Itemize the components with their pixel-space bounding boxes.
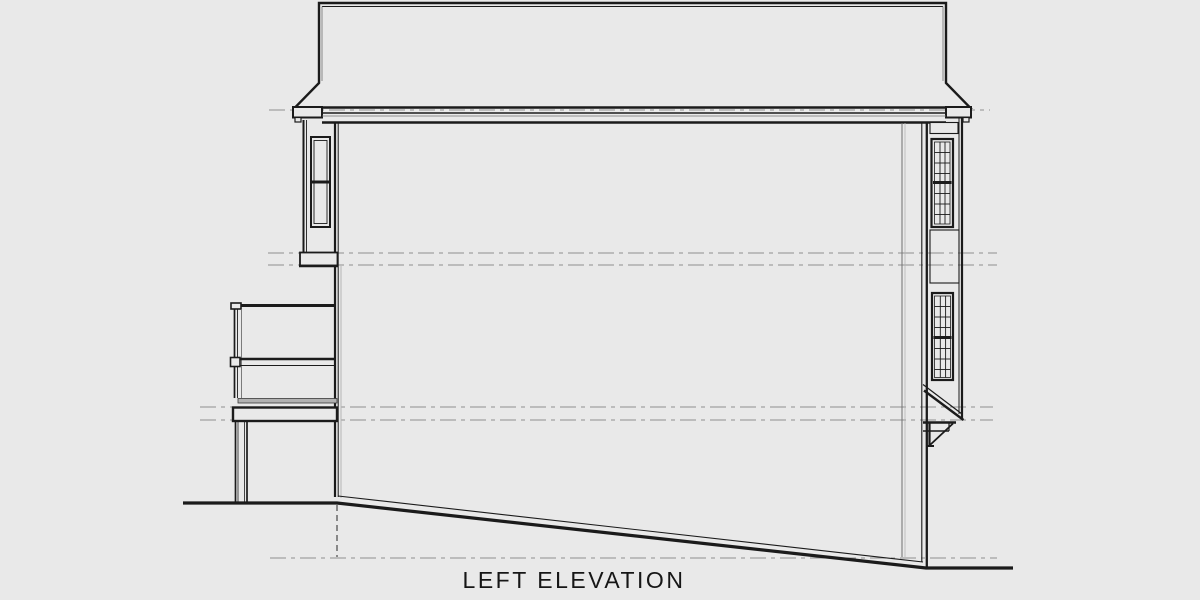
eave-right <box>946 107 971 118</box>
drawing-title: LEFT ELEVATION <box>414 567 734 594</box>
elevation-drawing <box>0 0 1200 600</box>
deck-top-rail-cap <box>231 303 241 309</box>
bay-underside-slope-top <box>923 385 962 415</box>
bay-bracket-brace <box>930 424 953 446</box>
roof-outline <box>295 3 970 108</box>
right-bay-mid-panel <box>930 230 959 283</box>
left-bay-base <box>300 253 338 266</box>
right-bay-top-panel <box>930 123 958 134</box>
eave-right-return <box>963 118 969 123</box>
deck-mid-rail-cap <box>231 358 241 367</box>
drawing-canvas: LEFT ELEVATION <box>0 0 1200 600</box>
deck-floor-band <box>238 399 337 404</box>
eave-left-return <box>295 118 301 123</box>
wall-bottom-edge <box>338 496 923 562</box>
deck-rim-joist <box>233 408 337 422</box>
bay-underside-slope-bottom <box>924 391 964 421</box>
eave-left <box>293 107 322 118</box>
